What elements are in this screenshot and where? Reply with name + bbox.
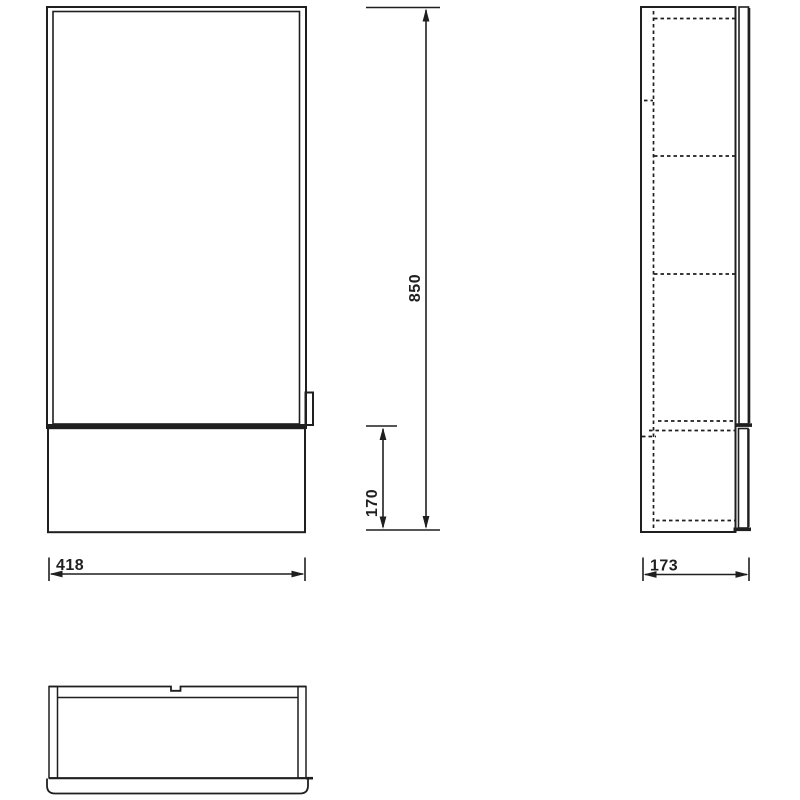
bottom-view — [47, 687, 313, 794]
side-base-panel — [739, 429, 749, 529]
dim-depth-label: 173 — [650, 558, 678, 575]
dim-depth: 173 — [643, 558, 749, 582]
front-body-outline — [47, 7, 306, 428]
side-door-handle — [735, 423, 753, 427]
side-base-bottom-edge — [734, 528, 752, 532]
dim-overall-height: 850 — [366, 8, 440, 531]
side-view — [641, 7, 752, 532]
front-view — [46, 7, 313, 532]
front-door-panel — [53, 12, 300, 425]
dim-width-label: 418 — [56, 557, 84, 574]
dim-height-arrow-down — [423, 516, 430, 529]
dim-height-label: 850 — [407, 274, 424, 302]
plan-left-side-panel — [49, 687, 58, 779]
side-body-outline — [641, 7, 736, 532]
plan-back-edge — [49, 687, 306, 691]
dim-depth-arrow-right — [736, 571, 749, 578]
plan-right-side-panel — [298, 687, 306, 779]
dim-width: 418 — [49, 557, 305, 581]
dim-width-arrow-right — [292, 571, 305, 578]
front-base-box — [48, 428, 305, 532]
dim-base-label: 170 — [364, 489, 381, 517]
plan-door-outline — [47, 779, 308, 794]
dim-base-arrow-up — [380, 428, 387, 441]
technical-drawing: 850 170 418 — [0, 0, 800, 800]
dim-height-arrow-up — [423, 9, 430, 22]
dim-base-height: 170 — [364, 426, 397, 529]
dim-base-arrow-down — [380, 517, 387, 530]
side-door-panel — [739, 7, 749, 424]
